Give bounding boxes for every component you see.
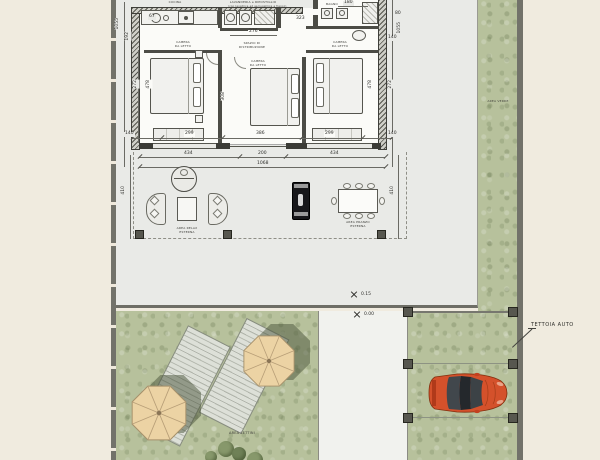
patio-column <box>223 230 232 239</box>
sun-umbrella <box>128 382 190 444</box>
level-upper: 0.15 <box>361 293 371 298</box>
carport-column <box>403 359 413 369</box>
label-bedroom-center: CAMERA DA LETTO <box>243 60 273 68</box>
dim-line <box>230 35 277 36</box>
bath-sink-bowl <box>339 10 345 16</box>
dim-140-left: 140 <box>124 132 135 137</box>
label-carport: TETTOIA AUTO <box>531 322 574 328</box>
dim-line <box>138 50 139 143</box>
label-kitchen: CUCINA <box>160 1 190 5</box>
label-hall: SPAZIO DI DISTRIBUZIONE <box>234 42 270 50</box>
exterior-wall-right <box>379 0 386 149</box>
dim-478-left: 478 <box>146 80 153 89</box>
pillow <box>291 74 299 94</box>
sun-umbrella <box>240 332 298 390</box>
label-bedroom-left: CAMERA DA LETTO <box>168 41 198 49</box>
dim-272-left: 272 <box>133 80 140 89</box>
storage-cabinet <box>254 10 275 25</box>
dim-140-right-top: 140 <box>387 36 398 41</box>
bed-fold-line <box>329 58 330 114</box>
dining-chair <box>355 213 363 219</box>
window <box>307 143 372 149</box>
dining-chair <box>367 213 375 219</box>
dim-line <box>124 2 125 167</box>
dim-386: 386 <box>255 132 266 137</box>
label-dining-area: AREA PRANZO ESTERNA <box>336 221 380 229</box>
window <box>153 143 216 149</box>
walkway-path <box>318 311 408 460</box>
dim-276: 276 <box>248 30 259 35</box>
console-slit <box>298 194 303 206</box>
carport-column <box>508 307 518 317</box>
bed-fold-line <box>287 68 288 126</box>
wardrobe <box>312 128 362 141</box>
pillow <box>193 87 201 107</box>
dining-table <box>338 189 378 213</box>
parking-bay-line <box>408 417 517 418</box>
dim-80: 80 <box>394 12 402 17</box>
dim-323: 323 <box>295 17 306 22</box>
wall-block <box>372 143 381 149</box>
level-marker-icon <box>350 291 358 299</box>
console-cap-bottom <box>294 212 308 216</box>
bbq-grill-inner <box>180 169 188 176</box>
dim-line <box>130 155 131 239</box>
patio-column <box>377 230 386 239</box>
label-loungers-area: AREA LETTINI <box>222 431 262 436</box>
carport-column <box>403 413 413 423</box>
dim-line <box>398 155 399 239</box>
armchair-round <box>352 30 366 41</box>
pillow <box>316 63 324 83</box>
interior-wall <box>306 26 379 29</box>
pillow <box>316 87 324 107</box>
dim-line <box>132 138 392 139</box>
dim-299-right: 299 <box>324 132 335 137</box>
bed-fold-line <box>188 58 189 114</box>
dining-chair <box>343 213 351 219</box>
interior-wall <box>306 50 379 53</box>
nightstand <box>195 50 203 58</box>
dim-192: 192 <box>125 32 132 41</box>
interior-wall <box>313 15 318 26</box>
dim-67: 67 <box>148 15 156 20</box>
dryer-drum <box>241 13 250 22</box>
carport-column <box>403 307 413 317</box>
wall-block <box>216 143 230 149</box>
dim-308: 308 <box>221 92 228 101</box>
bush <box>232 447 246 460</box>
wall-block <box>139 143 153 149</box>
dim-1055-right: 1055 <box>397 22 404 33</box>
cooktop-burner <box>184 16 188 20</box>
label-bedroom-right: CAMERA DA LETTO <box>325 41 355 49</box>
carport-edge-line <box>408 311 517 313</box>
interior-wall <box>313 0 318 9</box>
carport-column <box>508 359 518 369</box>
interior-wall <box>276 8 281 28</box>
dim-410-left: 410 <box>121 186 128 195</box>
dim-272-right: 272 <box>388 80 395 89</box>
pillow <box>193 63 201 83</box>
level-lower: 0.00 <box>364 313 374 318</box>
nightstand <box>195 115 203 123</box>
pillow <box>291 98 299 118</box>
dim-180: 180 <box>343 1 354 6</box>
label-laundry: LAVANDERIA e RIPOSTIGLIO (con lavatrice … <box>228 1 278 8</box>
leader-tick <box>528 328 536 329</box>
washer-drum <box>226 13 235 22</box>
dim-140-right: 140 <box>387 132 398 137</box>
dim-410-right: 410 <box>390 186 397 195</box>
building-floorplan: CUCINA LAVANDERIA e RIPOSTIGLIO (con lav… <box>0 0 600 170</box>
dim-478-right: 478 <box>368 80 375 89</box>
label-green-area: AREA VERDE <box>478 100 518 104</box>
wall-block <box>286 143 307 149</box>
interior-wall <box>218 8 222 28</box>
label-relax-area: AREA RELAX ESTERNA <box>165 227 209 235</box>
carport-column <box>508 413 518 423</box>
dim-299-left: 299 <box>184 132 195 137</box>
patio-column <box>135 230 144 239</box>
label-laundry-line2: (con lavatrice ed asciugatrice a fianco) <box>228 5 278 8</box>
bush <box>205 451 217 460</box>
car-top-view <box>427 372 509 414</box>
level-marker-icon <box>353 311 361 319</box>
kitchen-sink-small <box>163 15 169 21</box>
dim-1055-left: 1055 <box>115 18 122 29</box>
bath-sink-bowl <box>324 10 330 16</box>
dining-chair <box>331 197 337 205</box>
parking-bay-line <box>408 363 517 364</box>
sliding-door-sill <box>230 146 286 147</box>
console-cap-top <box>294 184 308 188</box>
sliding-door-sill <box>230 144 286 145</box>
dining-chair <box>379 197 385 205</box>
bbq-grill-bar <box>174 178 194 179</box>
coffee-table <box>177 197 197 221</box>
interior-wall <box>302 57 306 143</box>
site-plan-drawing: CUCINA LAVANDERIA e RIPOSTIGLIO (con lav… <box>0 0 600 460</box>
dim-line <box>338 6 368 7</box>
